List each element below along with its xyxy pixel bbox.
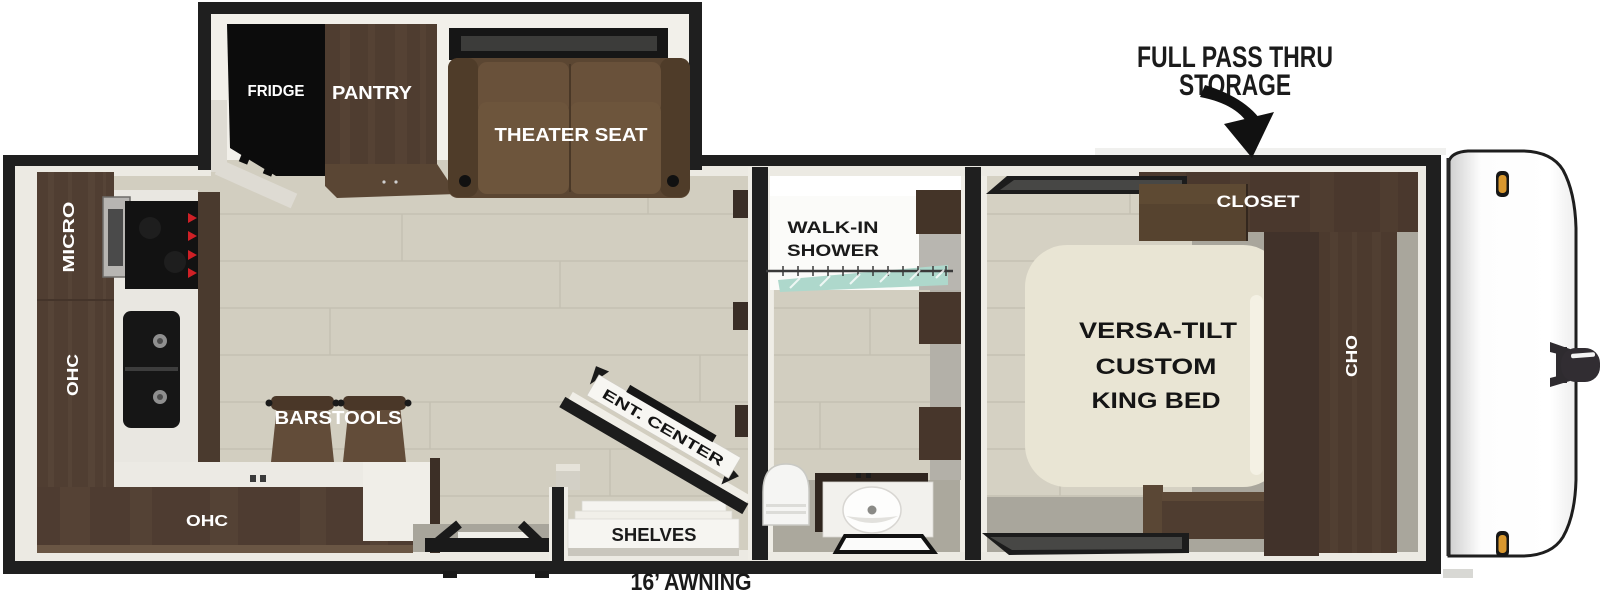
svg-text:THEATER SEAT: THEATER SEAT (495, 125, 648, 145)
svg-text:MICRO: MICRO (61, 202, 78, 273)
svg-text:SHOWER: SHOWER (787, 241, 879, 260)
svg-text:PANTRY: PANTRY (332, 83, 412, 103)
svg-text:FRIDGE: FRIDGE (248, 83, 305, 100)
svg-text:BARSTOOLS: BARSTOOLS (275, 408, 402, 428)
svg-text:CLOSET: CLOSET (1217, 192, 1301, 211)
svg-text:VERSA-TILT: VERSA-TILT (1079, 318, 1238, 343)
svg-text:KING BED: KING BED (1092, 388, 1221, 413)
svg-text:SHELVES: SHELVES (612, 525, 697, 545)
svg-text:OHC: OHC (186, 513, 228, 530)
svg-text:16’ AWNING: 16’ AWNING (631, 569, 752, 591)
svg-text:WALK-IN: WALK-IN (788, 218, 879, 237)
svg-text:CUSTOM: CUSTOM (1096, 354, 1217, 379)
svg-text:STORAGE: STORAGE (1179, 69, 1291, 102)
svg-text:OHC: OHC (65, 354, 82, 396)
svg-text:CHO: CHO (1344, 335, 1361, 377)
